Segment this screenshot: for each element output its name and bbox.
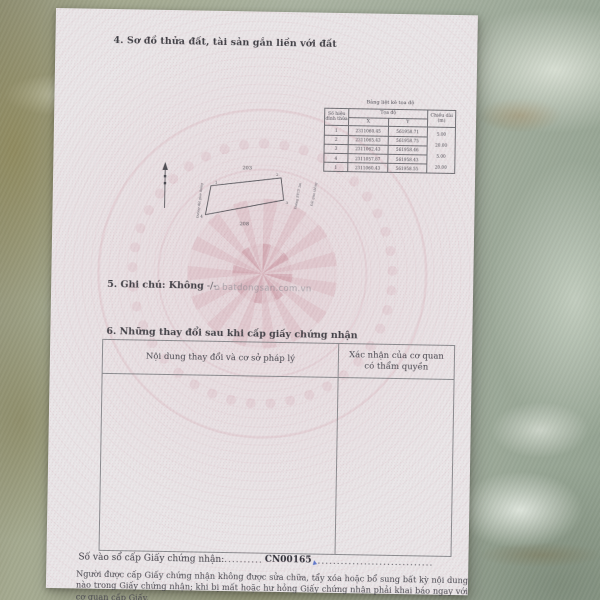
- dotted-leader: ..............................: [317, 557, 433, 569]
- adjacent-parcel-top: 203: [242, 165, 252, 171]
- cell-y: 561958.55: [387, 164, 427, 174]
- col-header-vertex: Số hiệu đỉnh thửa: [324, 108, 348, 126]
- col-header-length: Chiều dài (m): [427, 110, 455, 128]
- changes-content-cell: [99, 374, 338, 555]
- road-label-left: Đường đất giao thông: [196, 183, 204, 218]
- registry-serial-value: CN00165: [263, 555, 314, 566]
- section4-heading: 4. Sơ đồ thửa đất, tài sản gắn liền với …: [113, 35, 337, 50]
- footer-notice: Người được cấp Giấy chứng nhận không đượ…: [76, 568, 469, 600]
- registry-label: Số vào sổ cấp Giấy chứng nhận:: [78, 552, 224, 565]
- north-arrow-icon: [162, 162, 168, 208]
- marble-table-background: 4. Sơ đồ thửa đất, tài sản gắn liền với …: [0, 0, 600, 600]
- watermark-text: batdongsan.com.vn: [222, 283, 312, 295]
- edge-length: 5.00: [428, 131, 455, 136]
- edge-length-list: 5.00 20.00 5.00 20.00: [427, 128, 455, 173]
- cell-vertex: 1: [324, 126, 348, 136]
- vertex-number-1: 1: [215, 181, 217, 185]
- cell-x: 2311060.43: [348, 163, 388, 173]
- changes-col-content: Nội dung thay đổi và cơ sở pháp lý: [102, 339, 339, 377]
- section5-value: Không: [169, 280, 204, 292]
- coordinate-table: Số hiệu đỉnh thửa Tọa độ Chiều dài (m) X…: [323, 108, 456, 175]
- road-label-right-1: Đường BTCT 3m: [293, 183, 302, 210]
- section5-note: 5. Ghi chú: Không -/-: [107, 279, 216, 292]
- vertex-number-3: 3: [286, 201, 289, 205]
- dotted-leader: ..........: [224, 555, 263, 566]
- certificate-page: 4. Sơ đồ thửa đất, tài sản gắn liền với …: [46, 8, 478, 595]
- road-label-right-2: Đất giao thông: [310, 182, 319, 206]
- watermark: ⌂ batdongsan.com.vn: [214, 283, 312, 295]
- cell-vertex: 2: [324, 135, 348, 145]
- cell-lengths: 5.00 20.00 5.00 20.00: [427, 127, 456, 173]
- coordinate-table-block: Bảng liệt kê tọa độ Số hiệu đỉnh thửa Tọ…: [323, 99, 456, 175]
- vertex-number-2: 2: [276, 173, 278, 177]
- edge-length: 5.00: [427, 154, 454, 159]
- changes-confirm-cell: [335, 378, 454, 557]
- cell-vertex: 3: [324, 144, 348, 154]
- adjacent-parcel-bottom: 208: [239, 221, 249, 227]
- edge-length: 20.00: [427, 165, 454, 170]
- changes-table: Nội dung thay đổi và cơ sở pháp lý Xác n…: [99, 339, 456, 557]
- edge-length: 20.00: [428, 142, 455, 147]
- watermark-house-icon: ⌂: [214, 283, 220, 293]
- section5-heading: 5. Ghi chú:: [107, 279, 165, 291]
- changes-body-row: [99, 374, 454, 557]
- parcel-diagram: 203 208 1 2 3 4 Đường đất giao thông Đườ…: [136, 153, 337, 236]
- vertex-number-4: 4: [200, 215, 203, 219]
- coordinate-table-title: Bảng liệt kê tọa độ: [324, 99, 456, 107]
- changes-col-confirm: Xác nhận của cơ quan có thẩm quyền: [338, 343, 455, 379]
